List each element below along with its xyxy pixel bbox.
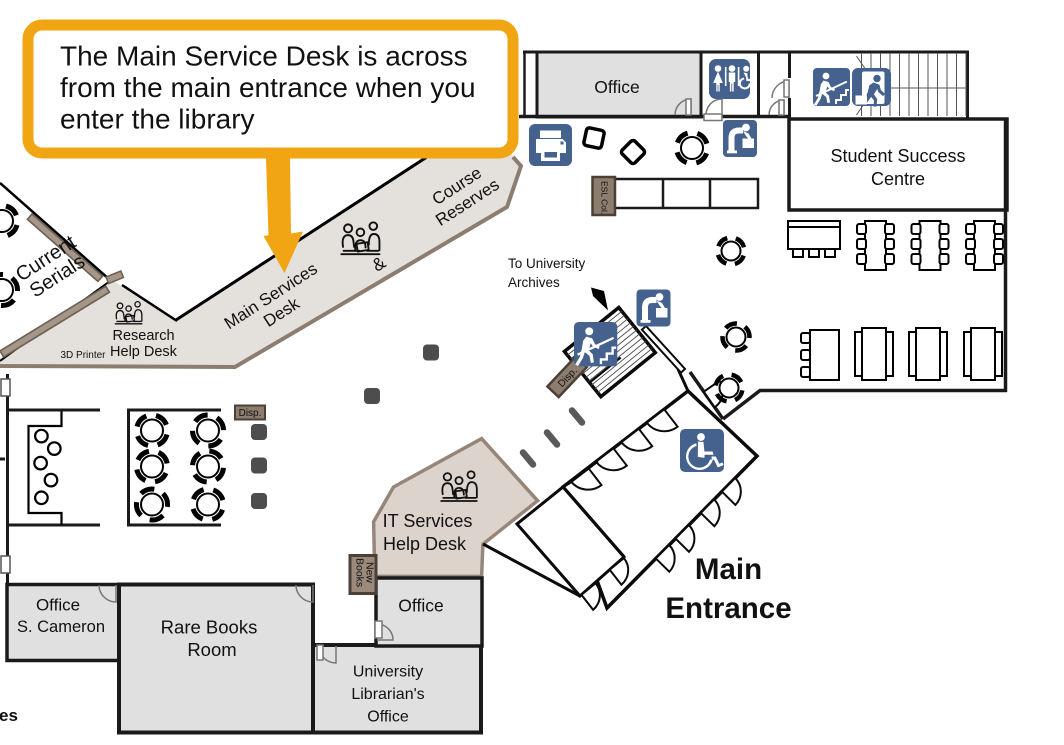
- svg-text:Student Success: Student Success: [830, 146, 965, 166]
- svg-text:To University: To University: [508, 256, 586, 271]
- svg-text:Office: Office: [36, 596, 80, 615]
- svg-text:Centre: Centre: [871, 169, 925, 189]
- svg-text:Office: Office: [367, 709, 409, 726]
- svg-text:Office: Office: [594, 77, 639, 97]
- svg-text:Room: Room: [187, 639, 236, 660]
- svg-text:Rare Books: Rare Books: [161, 617, 258, 638]
- svg-text:3D Printer: 3D Printer: [60, 350, 106, 361]
- svg-text:IT Services: IT Services: [383, 511, 473, 531]
- svg-text:S. Cameron: S. Cameron: [17, 618, 105, 636]
- svg-text:Disp.: Disp.: [239, 408, 262, 419]
- svg-text:from the main entrance when yo: from the main entrance when you: [60, 72, 476, 103]
- svg-text:The Main Service Desk is acros: The Main Service Desk is across: [60, 41, 468, 72]
- svg-text:Entrance: Entrance: [665, 592, 791, 625]
- svg-text:Help Desk: Help Desk: [383, 534, 467, 554]
- svg-text:Main: Main: [695, 553, 762, 586]
- svg-text:Librarian's: Librarian's: [351, 686, 424, 703]
- svg-text:Office: Office: [398, 596, 443, 616]
- svg-text:University: University: [353, 664, 423, 681]
- svg-text:Archives: Archives: [508, 275, 560, 290]
- svg-text:ESL Col.: ESL Col.: [600, 181, 610, 214]
- svg-text:Help Desk: Help Desk: [110, 344, 178, 360]
- svg-text:Research: Research: [112, 328, 174, 344]
- svg-text:es: es: [0, 706, 18, 725]
- svg-text:enter the library: enter the library: [60, 104, 255, 135]
- svg-text:Books: Books: [354, 558, 366, 587]
